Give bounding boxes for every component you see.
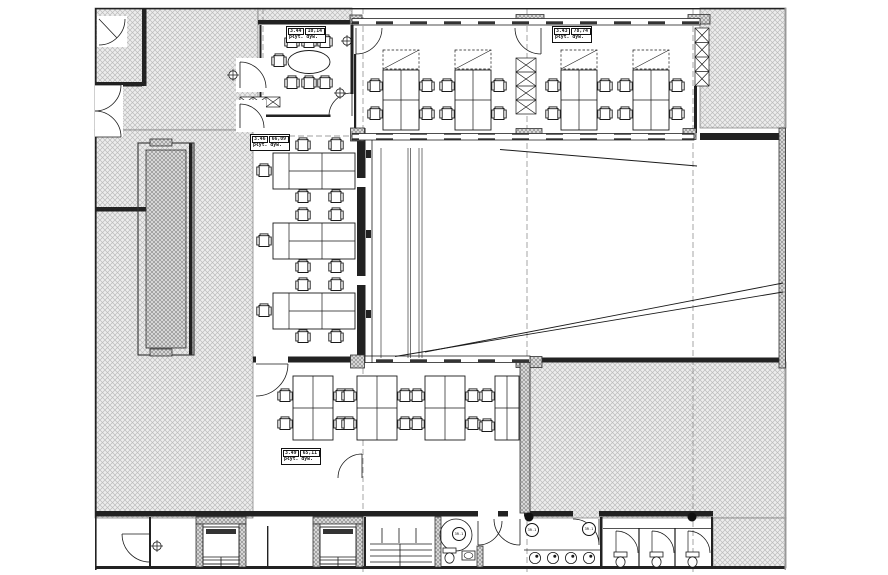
room-finish: płyt. dyw. xyxy=(288,35,325,41)
door-tag: 3R.1 xyxy=(582,522,596,536)
washroom xyxy=(524,550,600,564)
furniture-north-office xyxy=(368,28,709,130)
wc-stalls xyxy=(603,528,711,567)
lattice-column xyxy=(695,28,709,86)
staircase xyxy=(370,528,432,566)
furniture-west-office xyxy=(257,138,355,343)
column-dot xyxy=(525,513,534,522)
floor-plan-drawing xyxy=(0,0,888,575)
room-finish: płyt. dyw. xyxy=(554,35,591,41)
room-label-office-south: 3.49 65,11 płyt. dyw. xyxy=(281,448,321,465)
floor-plan-canvas: 3.44 10,14 płyt. dyw. 3.43 78,74 płyt. d… xyxy=(0,0,888,575)
door-tag: 3R.1 xyxy=(525,523,539,537)
room-label-office-north: 3.43 78,74 płyt. dyw. xyxy=(552,26,592,43)
room-finish: płyt. dyw. xyxy=(252,143,289,149)
room-finish: płyt. dyw. xyxy=(283,457,320,463)
door-tag: 3R.1 xyxy=(452,527,466,541)
furniture-south-office xyxy=(278,376,519,440)
room-label-office-west: 3.46 66,09 płyt. dyw. xyxy=(250,134,290,151)
partial-cluster xyxy=(480,376,519,440)
elevators xyxy=(203,527,356,567)
hall-interior xyxy=(366,140,783,363)
accessible-wc xyxy=(440,519,475,563)
cabinet xyxy=(516,58,536,114)
column-dot xyxy=(688,513,697,522)
room-label-meeting: 3.44 10,14 płyt. dyw. xyxy=(286,26,326,43)
